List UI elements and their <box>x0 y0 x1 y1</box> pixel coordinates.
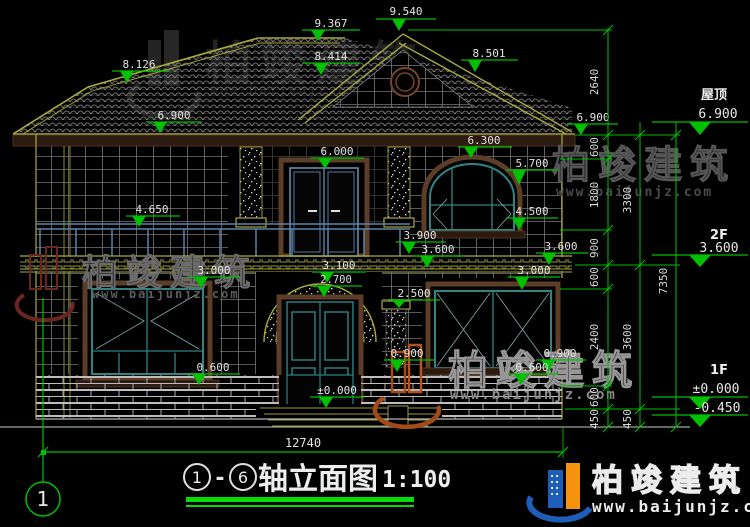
svg-text:4.650: 4.650 <box>135 203 168 216</box>
cad-elevation-drawing: 柏竣建筑 www.baijunjz.com <box>0 0 750 527</box>
svg-text:3.600: 3.600 <box>544 240 577 253</box>
svg-text:±0.000: ±0.000 <box>693 382 740 397</box>
svg-text:3.600: 3.600 <box>699 241 738 256</box>
svg-text:4.500: 4.500 <box>515 205 548 218</box>
door-handle-right <box>331 210 340 212</box>
svg-text:3.100: 3.100 <box>322 259 355 272</box>
svg-text:9.540: 9.540 <box>389 5 422 18</box>
svg-text:0.900: 0.900 <box>543 347 576 360</box>
svg-text:1F: 1F <box>710 363 728 378</box>
svg-text:8.501: 8.501 <box>472 47 505 60</box>
svg-text:3.600: 3.600 <box>421 243 454 256</box>
drawing-canvas: 柏竣建筑 www.baijunjz.com <box>0 0 750 527</box>
watermark-mid-right: 柏竣建筑 www.baijunjz.com <box>552 143 736 200</box>
watermark-brand-text: 柏竣建筑 <box>552 143 736 187</box>
svg-text:6.900: 6.900 <box>157 109 190 122</box>
title-axis-to: 6 <box>238 468 248 487</box>
balcony-door <box>281 160 367 256</box>
wall-2f-left <box>36 146 228 256</box>
svg-text:3.000: 3.000 <box>197 264 230 277</box>
svg-text:0.600: 0.600 <box>196 361 229 374</box>
dim-overall-height: 7350 <box>657 268 670 295</box>
dim-450a: 450 <box>588 409 601 429</box>
svg-text:9.367: 9.367 <box>314 17 347 30</box>
svg-text:5.700: 5.700 <box>515 157 548 170</box>
svg-text:3.900: 3.900 <box>403 229 436 242</box>
dim-overall-width: 12740 <box>285 436 321 450</box>
dim-1800: 1800 <box>588 182 601 209</box>
title-axis-from: 1 <box>192 468 202 487</box>
axis-bubble-number: 1 <box>37 487 50 511</box>
dim-900: 900 <box>588 238 601 258</box>
dim-600a: 600 <box>588 137 601 157</box>
dim-450b: 450 <box>621 409 634 429</box>
dim-3300: 3300 <box>621 187 634 214</box>
arched-window <box>419 157 525 238</box>
dim-2400: 2400 <box>588 324 601 351</box>
svg-text:8.126: 8.126 <box>122 58 155 71</box>
entrance-steps <box>256 404 442 427</box>
svg-text:6.300: 6.300 <box>467 134 500 147</box>
svg-text:3.000: 3.000 <box>517 264 550 277</box>
svg-text:±0.000: ±0.000 <box>317 384 357 397</box>
door-handle-left <box>308 210 317 212</box>
svg-text:2.700: 2.700 <box>320 274 352 286</box>
brand-name-text: 柏竣建筑 <box>592 463 748 499</box>
svg-text:8.414: 8.414 <box>314 50 347 63</box>
title-underline-thick <box>186 497 414 502</box>
dim-600c: 600 <box>588 387 601 407</box>
svg-text:屋顶: 屋顶 <box>701 88 727 103</box>
title-block: 1 - 6 轴立面图 1:100 <box>184 462 451 507</box>
dim-3600: 3600 <box>621 324 634 351</box>
svg-text:2.500: 2.500 <box>397 287 430 300</box>
watermark-url-text: www.baijunjz.com <box>556 185 713 200</box>
svg-text:0.900: 0.900 <box>390 347 423 360</box>
logo-tower-orange <box>566 463 580 509</box>
brand-url-text: www.baijunjz.com <box>592 497 750 516</box>
svg-text:0.600: 0.600 <box>515 361 548 374</box>
title-separator: - <box>215 466 224 491</box>
svg-text:6.900: 6.900 <box>576 111 609 124</box>
gable-round-window <box>391 68 419 96</box>
drawing-title: 轴立面图 <box>258 462 378 497</box>
dim-600b: 600 <box>588 267 601 287</box>
svg-text:6.900: 6.900 <box>698 107 737 122</box>
drawing-scale: 1:100 <box>382 467 451 493</box>
stone-pillar-left <box>236 147 266 227</box>
logo-tower-blue <box>548 470 563 508</box>
svg-text:-0.450: -0.450 <box>694 401 741 416</box>
watermark-url-text: www.baijunjz.com <box>92 287 240 301</box>
stone-pillar-right <box>384 147 414 227</box>
dim-2640: 2640 <box>588 69 601 96</box>
svg-text:6.000: 6.000 <box>320 145 353 158</box>
title-underline-thin <box>186 505 414 507</box>
